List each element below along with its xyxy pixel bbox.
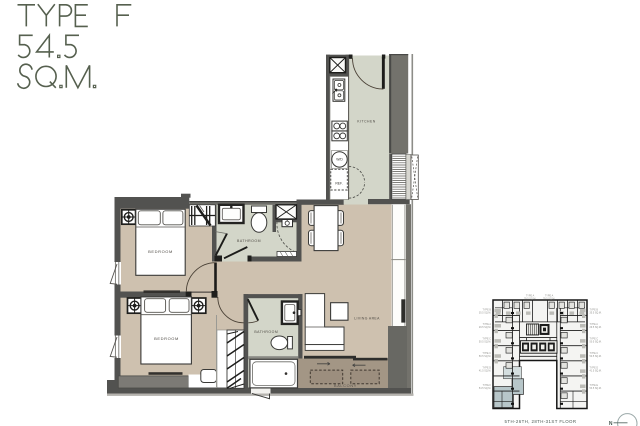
svg-text:BEDROOM: BEDROOM [148, 249, 173, 254]
svg-text:41.5 SQ.M.: 41.5 SQ.M. [479, 370, 491, 373]
svg-text:N: N [609, 421, 613, 426]
svg-text:BATHROOM: BATHROOM [254, 330, 278, 334]
svg-text:REF.: REF. [335, 182, 342, 186]
svg-text:BALCONY: BALCONY [334, 384, 357, 388]
svg-text:29.5 SQ.M.: 29.5 SQ.M. [543, 298, 555, 301]
svg-text:29.5 SQ.M.: 29.5 SQ.M. [524, 298, 536, 301]
svg-text:50.5 SQ.M.: 50.5 SQ.M. [590, 341, 602, 344]
svg-text:50.5 SQ.M.: 50.5 SQ.M. [479, 341, 491, 344]
svg-text:29.5 SQ.M.: 29.5 SQ.M. [479, 326, 491, 329]
svg-text:29.5 SQ.M.: 29.5 SQ.M. [590, 326, 602, 329]
svg-text:KITCHEN: KITCHEN [357, 120, 375, 124]
svg-text:53.5 SQ.M.: 53.5 SQ.M. [590, 387, 602, 390]
svg-text:54.5 SQ.M.: 54.5 SQ.M. [479, 387, 491, 390]
svg-text:5TH-26TH, 28TH-31ST FLOOR: 5TH-26TH, 28TH-31ST FLOOR [505, 419, 577, 424]
svg-text:41.5 SQ.M.: 41.5 SQ.M. [590, 370, 602, 373]
svg-text:BEDROOM: BEDROOM [154, 336, 179, 341]
svg-text:35.5 SQ.M.: 35.5 SQ.M. [590, 312, 602, 315]
svg-text:50.5 SQ.M.: 50.5 SQ.M. [590, 355, 602, 358]
svg-text:35.5 SQ.M.: 35.5 SQ.M. [479, 312, 491, 315]
svg-text:50.5 SQ.M.: 50.5 SQ.M. [479, 355, 491, 358]
svg-text:BATHROOM: BATHROOM [237, 239, 261, 243]
svg-text:W/D: W/D [336, 158, 343, 162]
svg-text:LIVING AREA: LIVING AREA [354, 317, 380, 321]
